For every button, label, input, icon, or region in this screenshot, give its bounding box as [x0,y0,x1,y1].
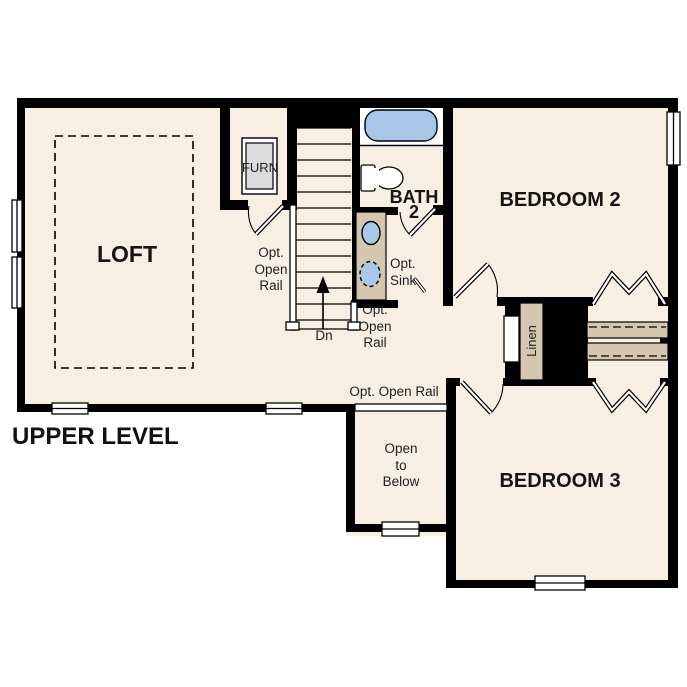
bedroom2-label: BEDROOM 2 [470,189,650,212]
open-to-below-label: Open to Below [361,441,441,491]
bedroom3-label: BEDROOM 3 [470,470,650,493]
bedroom3-closet-shelf [587,343,668,360]
opt-open-rail-hall-label: Opt. Open Rail [334,384,454,401]
bathtub [365,110,437,141]
loft-label: LOFT [67,241,187,268]
furnace-label: FURN [234,160,286,175]
bedroom3-window [535,576,585,590]
bedroom2-closet-shelf [587,322,668,338]
loft-window-bottom-right [266,403,302,414]
sink [362,222,380,245]
hall-open-rail [355,404,447,411]
stairs-down-label: Dn [304,328,344,345]
opt-sink-label: Opt. Sink [390,256,436,289]
loft-window-left-upper [12,200,22,252]
opt-open-rail-left-label: Opt. Open Rail [243,245,299,295]
bedroom2-window [667,112,680,165]
open-below-window [382,522,419,536]
linen-label: Linen [505,315,557,367]
floor-plan-page: LOFT BEDROOM 2 BEDROOM 3 BATH 2 FURN Lin… [0,0,687,687]
optional-sink [360,262,380,287]
loft-window-left-lower [12,257,22,308]
stair-rail-left-post [286,322,299,330]
opt-open-rail-right-label: Opt. Open Rail [347,302,403,352]
bath2-label: BATH 2 [383,190,445,220]
plan-title: UPPER LEVEL [12,423,252,451]
loft-window-bottom-left [52,403,88,414]
